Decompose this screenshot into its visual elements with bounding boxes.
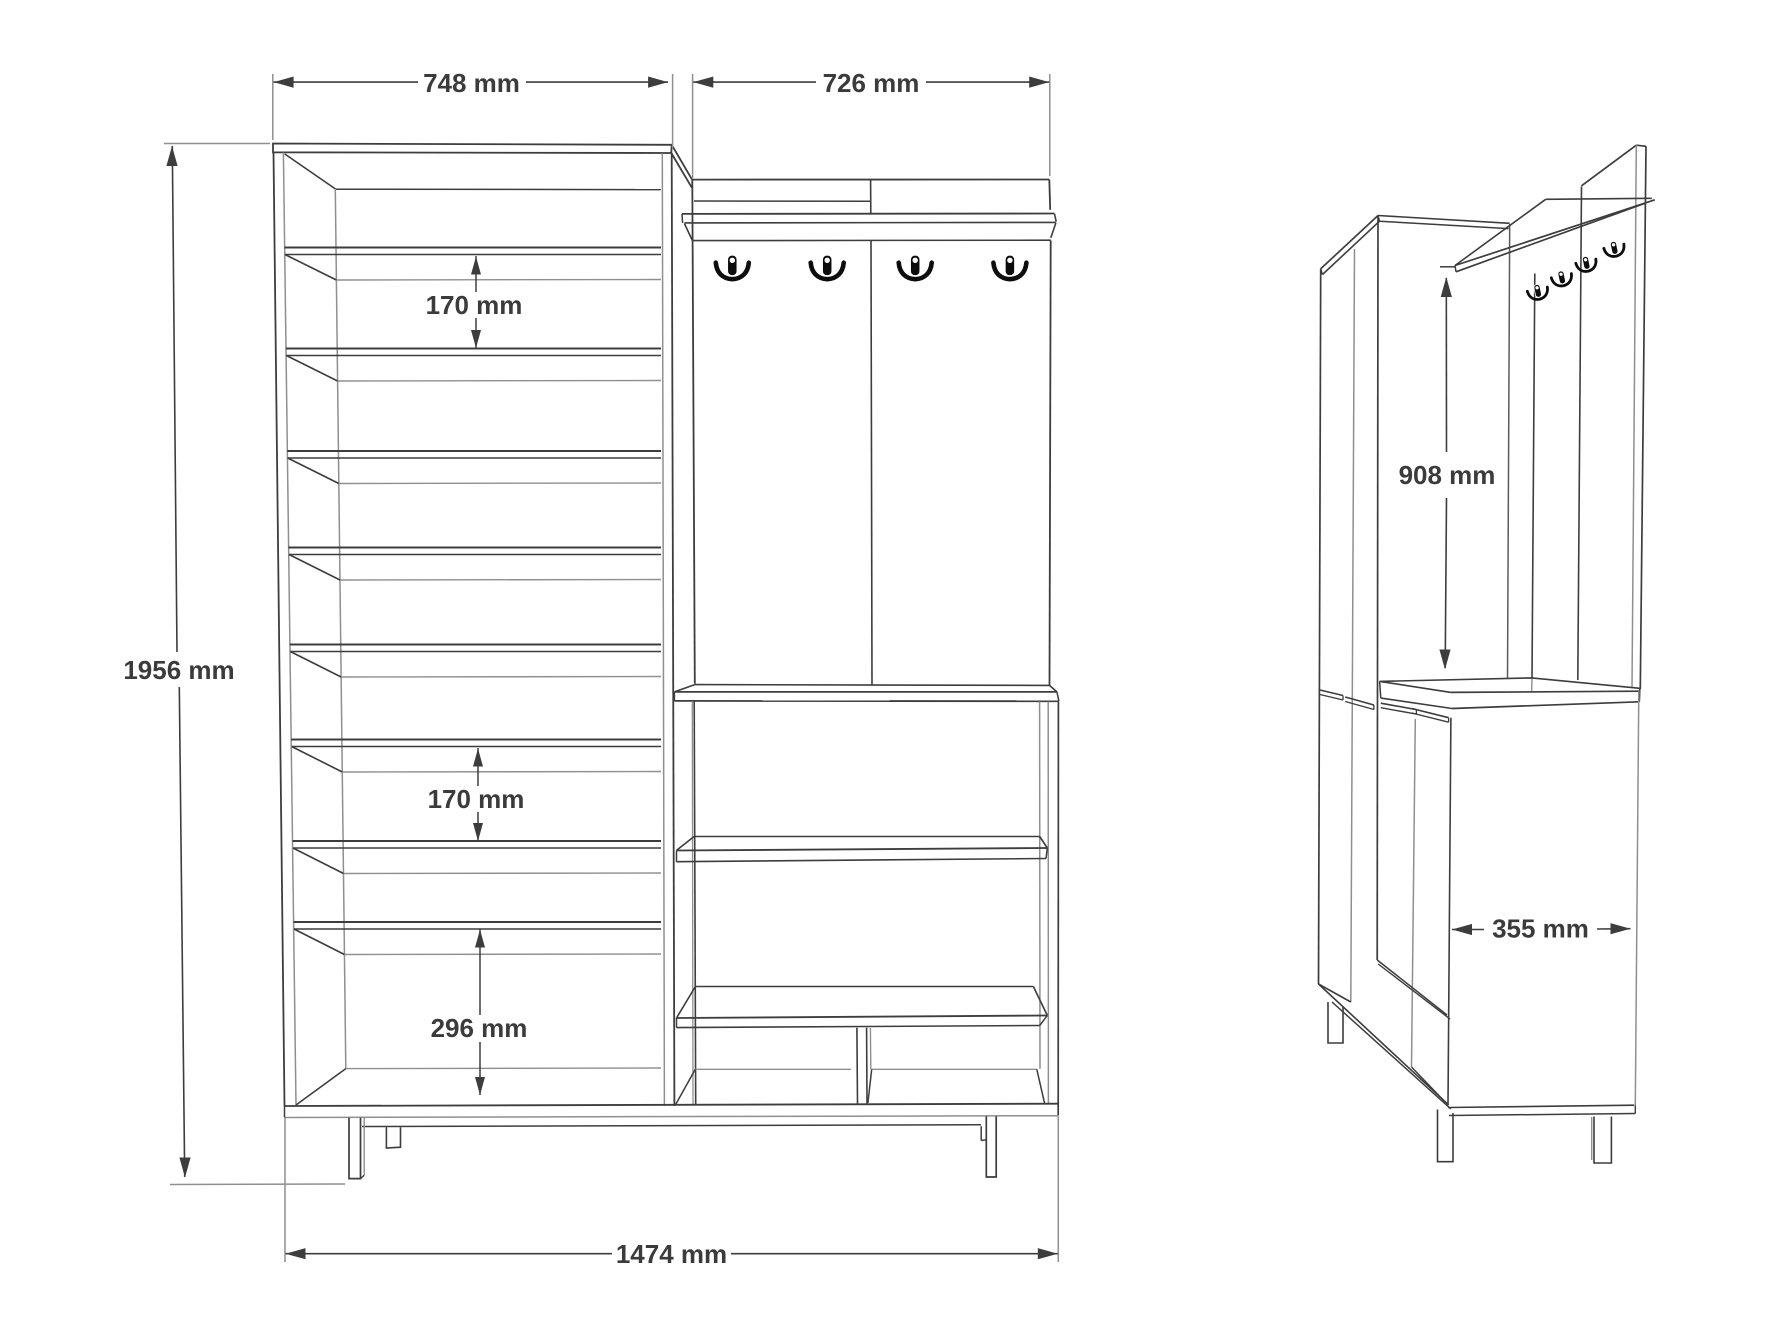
svg-text:726 mm: 726 mm [823, 68, 920, 98]
svg-text:1474 mm: 1474 mm [616, 1239, 727, 1269]
svg-text:908 mm: 908 mm [1399, 460, 1496, 490]
svg-text:748 mm: 748 mm [423, 68, 520, 98]
svg-text:1956 mm: 1956 mm [123, 655, 234, 685]
svg-text:355 mm: 355 mm [1492, 914, 1589, 944]
svg-text:170 mm: 170 mm [426, 290, 523, 320]
svg-text:170 mm: 170 mm [428, 784, 525, 814]
svg-text:296 mm: 296 mm [431, 1013, 528, 1043]
